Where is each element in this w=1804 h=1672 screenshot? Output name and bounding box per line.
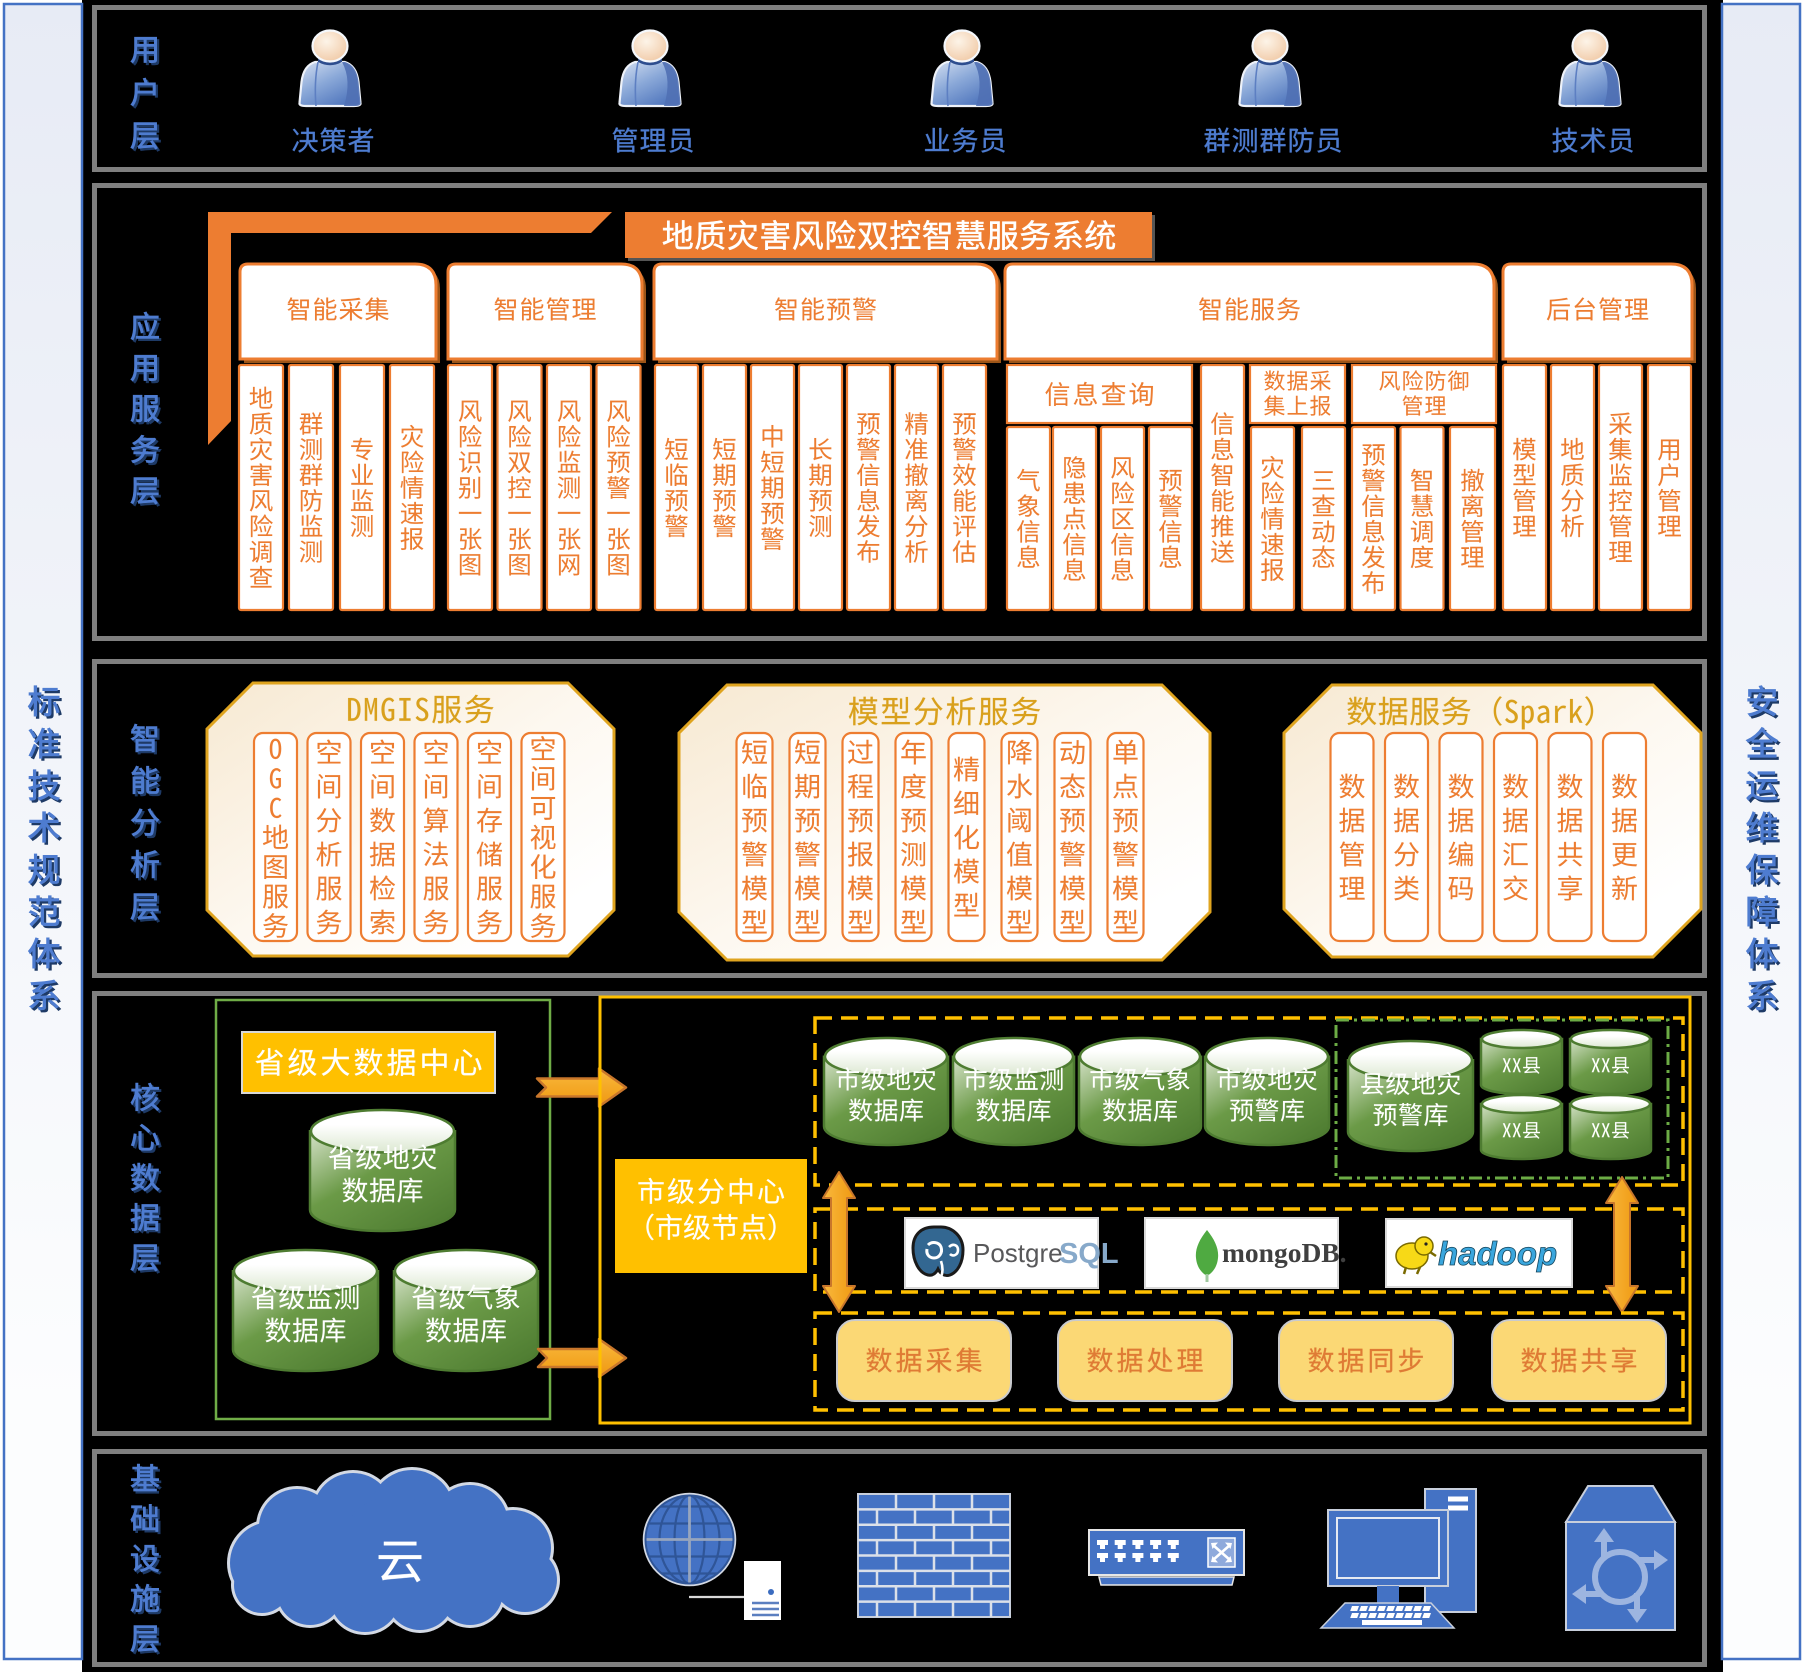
svg-text:mongoDB.: mongoDB. — [1222, 1237, 1347, 1268]
svg-text:Postgre: Postgre — [973, 1238, 1063, 1268]
svg-text:SQL: SQL — [1059, 1238, 1119, 1270]
svg-text:hadoop: hadoop — [1438, 1235, 1557, 1272]
